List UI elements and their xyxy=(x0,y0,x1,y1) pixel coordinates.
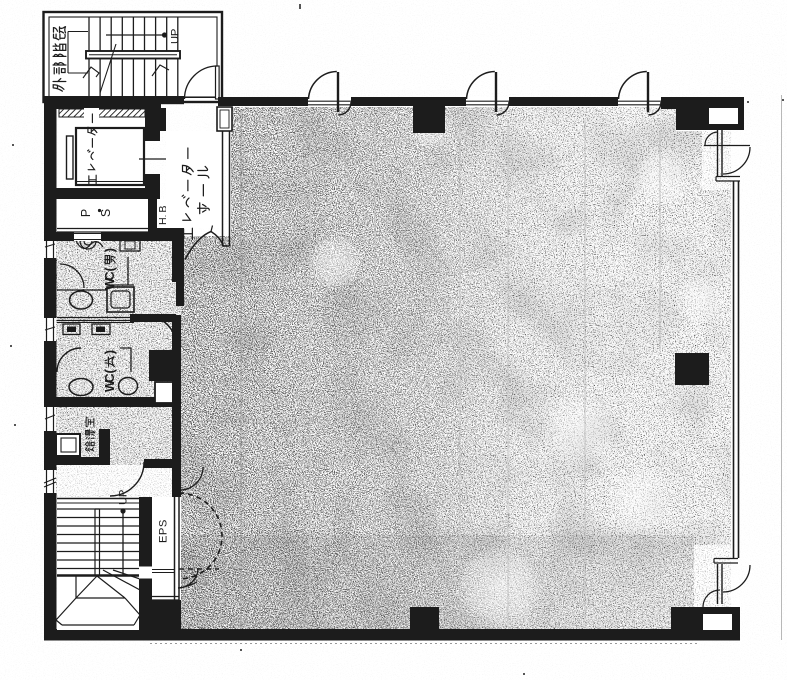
svg-text:C: C xyxy=(102,271,117,280)
svg-text:S: S xyxy=(158,520,170,527)
svg-text:P: P xyxy=(170,29,182,36)
svg-text:(: ( xyxy=(102,369,117,374)
svg-text:P: P xyxy=(79,209,93,217)
svg-text:(: ( xyxy=(102,267,117,272)
svg-text:P: P xyxy=(118,490,130,497)
svg-text:U: U xyxy=(170,36,182,44)
svg-text:U: U xyxy=(118,497,130,505)
svg-text:): ) xyxy=(102,350,117,354)
svg-text:E: E xyxy=(158,536,170,543)
svg-text:S: S xyxy=(99,209,113,217)
svg-text:): ) xyxy=(102,248,117,252)
svg-text:C: C xyxy=(102,373,117,382)
svg-text:P: P xyxy=(158,528,170,535)
